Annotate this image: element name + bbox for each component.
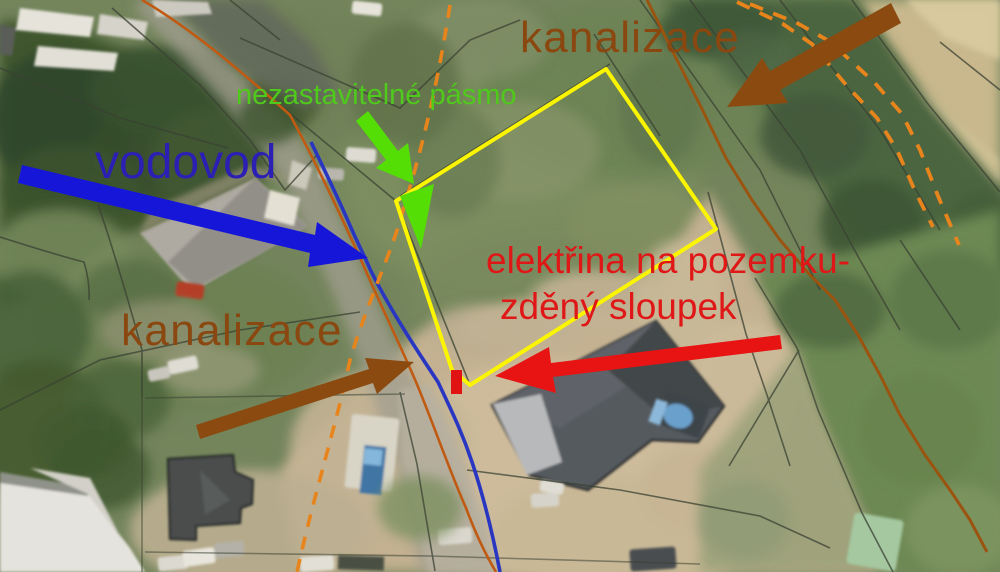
svg-text:zděný sloupek: zděný sloupek bbox=[500, 286, 737, 327]
svg-text:kanalizace: kanalizace bbox=[121, 306, 343, 355]
svg-text:vodovod: vodovod bbox=[95, 136, 276, 189]
svg-text:elektřina na pozemku-: elektřina na pozemku- bbox=[486, 240, 850, 281]
svg-text:nezastavitelné pásmo: nezastavitelné pásmo bbox=[236, 79, 517, 111]
svg-text:kanalizace: kanalizace bbox=[520, 13, 740, 62]
